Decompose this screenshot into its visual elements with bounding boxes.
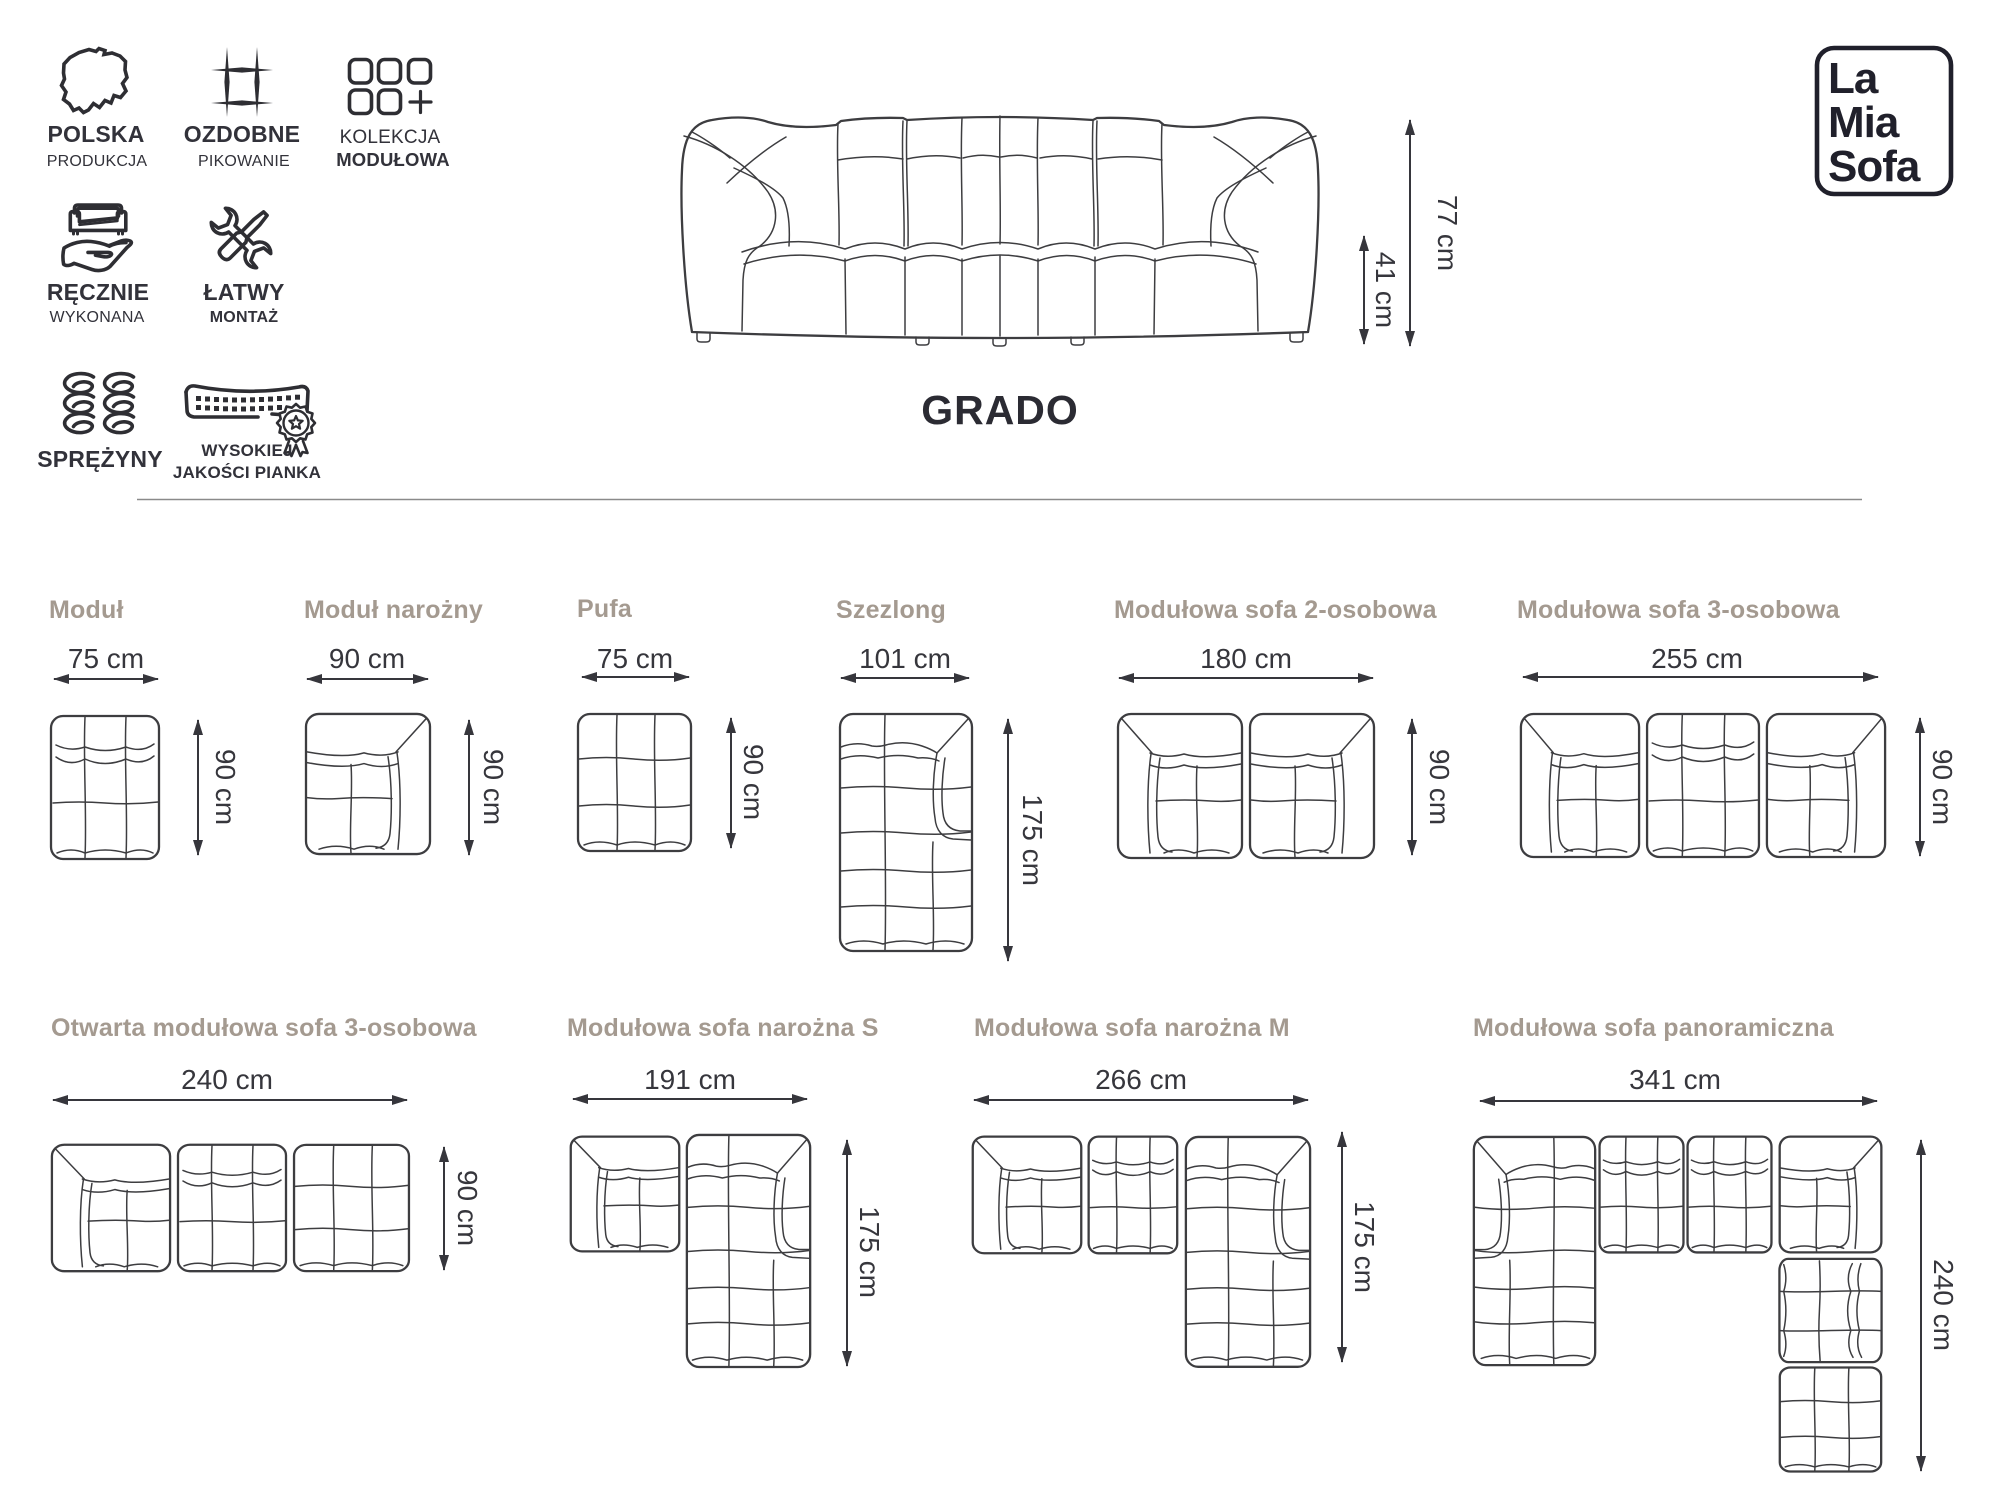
svg-text:Modułowa sofa narożna M: Modułowa sofa narożna M xyxy=(974,1014,1290,1042)
svg-text:WYSOKIEJ: WYSOKIEJ xyxy=(201,441,292,460)
svg-text:PRODUKCJA: PRODUKCJA xyxy=(47,153,148,170)
svg-text:90 cm: 90 cm xyxy=(210,749,241,825)
svg-text:90 cm: 90 cm xyxy=(478,749,509,825)
svg-text:JAKOŚCI PIANKA: JAKOŚCI PIANKA xyxy=(173,463,321,482)
svg-text:180 cm: 180 cm xyxy=(1200,643,1292,674)
svg-text:Pufa: Pufa xyxy=(577,595,633,623)
svg-text:POLSKA: POLSKA xyxy=(47,121,144,147)
svg-text:Modułowa sofa 3-osobowa: Modułowa sofa 3-osobowa xyxy=(1517,596,1841,624)
svg-text:MONTAŻ: MONTAŻ xyxy=(210,308,278,326)
svg-text:90 cm: 90 cm xyxy=(452,1170,483,1246)
svg-text:Modułowa sofa panoramiczna: Modułowa sofa panoramiczna xyxy=(1473,1014,1835,1042)
svg-text:WYKONANA: WYKONANA xyxy=(50,309,145,326)
svg-text:341 cm: 341 cm xyxy=(1629,1064,1721,1095)
svg-text:RĘCZNIE: RĘCZNIE xyxy=(47,279,149,305)
svg-text:SPRĘŻYNY: SPRĘŻYNY xyxy=(37,446,163,472)
svg-text:90 cm: 90 cm xyxy=(738,744,769,820)
svg-text:90 cm: 90 cm xyxy=(1424,749,1455,825)
svg-text:GRADO: GRADO xyxy=(921,387,1079,433)
svg-text:Mia: Mia xyxy=(1828,98,1900,147)
svg-text:Otwarta modułowa sofa 3-osobow: Otwarta modułowa sofa 3-osobowa xyxy=(51,1014,478,1042)
svg-text:175 cm: 175 cm xyxy=(1017,794,1048,886)
svg-text:75 cm: 75 cm xyxy=(68,643,144,674)
svg-text:240 cm: 240 cm xyxy=(181,1064,273,1095)
svg-text:90 cm: 90 cm xyxy=(1927,749,1958,825)
svg-text:77 cm: 77 cm xyxy=(1432,195,1463,271)
svg-text:266 cm: 266 cm xyxy=(1095,1064,1187,1095)
svg-text:90 cm: 90 cm xyxy=(329,643,405,674)
svg-text:La: La xyxy=(1828,54,1879,103)
svg-text:OZDOBNE: OZDOBNE xyxy=(184,121,300,147)
svg-text:191 cm: 191 cm xyxy=(644,1064,736,1095)
svg-text:175 cm: 175 cm xyxy=(854,1206,885,1298)
svg-text:PIKOWANIE: PIKOWANIE xyxy=(198,153,290,170)
svg-text:Moduł: Moduł xyxy=(49,596,124,624)
svg-text:Szezlong: Szezlong xyxy=(836,596,946,624)
svg-text:41 cm: 41 cm xyxy=(1370,252,1401,328)
svg-text:255 cm: 255 cm xyxy=(1651,643,1743,674)
svg-text:75 cm: 75 cm xyxy=(597,643,673,674)
svg-text:Modułowa sofa 2-osobowa: Modułowa sofa 2-osobowa xyxy=(1114,596,1438,624)
svg-text:Modułowa sofa narożna S: Modułowa sofa narożna S xyxy=(567,1014,879,1042)
svg-text:101 cm: 101 cm xyxy=(859,643,951,674)
svg-text:240 cm: 240 cm xyxy=(1928,1259,1959,1351)
svg-text:MODUŁOWA: MODUŁOWA xyxy=(336,149,450,170)
svg-text:Moduł narożny: Moduł narożny xyxy=(304,596,483,624)
svg-text:175 cm: 175 cm xyxy=(1349,1201,1380,1293)
svg-text:ŁATWY: ŁATWY xyxy=(203,279,284,305)
svg-text:Sofa: Sofa xyxy=(1828,142,1921,191)
svg-text:KOLEKCJA: KOLEKCJA xyxy=(340,127,441,148)
